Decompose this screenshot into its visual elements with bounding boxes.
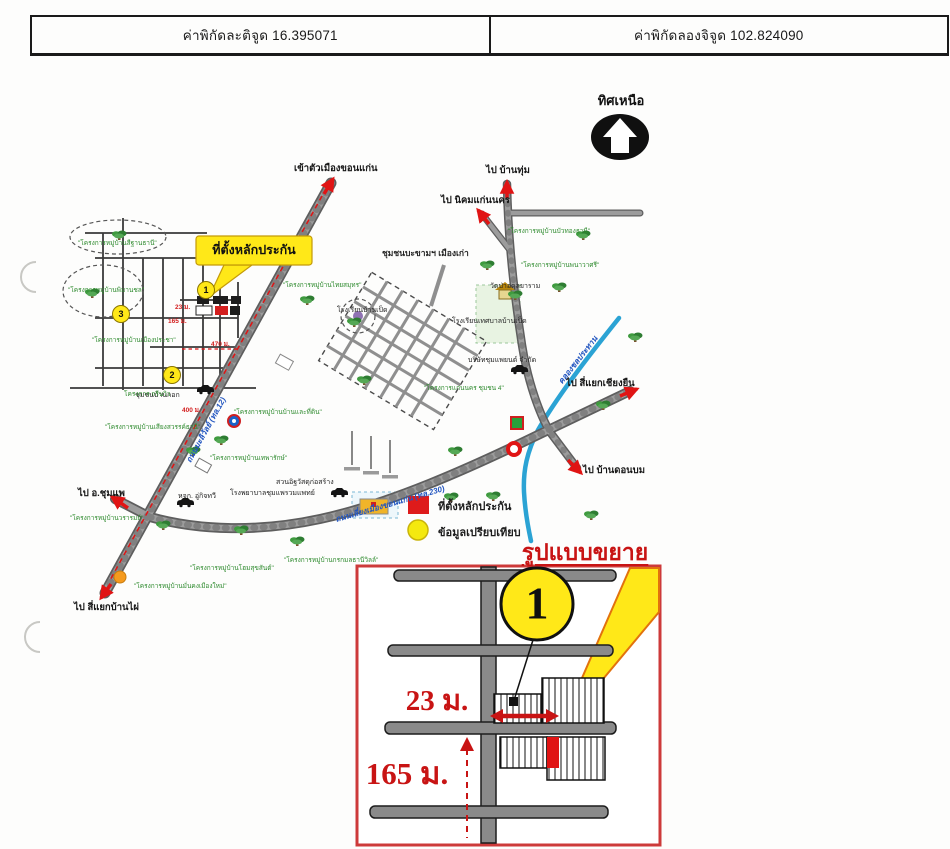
soi-stubs [352,431,390,473]
housing-project-label: "โครงการหมู่บ้านบัวทองธานี" [508,226,590,236]
place-name-label: บริษัทชุมแพยนต์ จำกัด [468,355,536,366]
inset-collateral-unit [547,737,559,768]
place-name-label: วัดป่าอดุลยาราม [490,281,540,292]
gas-station-icon-center [232,419,236,423]
comparison-point-icon [114,571,126,583]
enlargement-inset [357,566,660,845]
place-name-label: โรงพยาบาลชุมแพรวมแพทย์ [230,488,315,499]
housing-project-label: "โครงการหมู่บ้านเสียงสวรรค์ธานี" [105,422,200,432]
housing-project-label: "โครงการหมู่บ้านพิมานชล" [68,285,144,295]
place-name-label: สวนอิฐวัสดุก่อสร้าง [276,477,334,488]
housing-project-label: "โครงการหมู่บ้านไทยสมุทร" [283,280,361,290]
collateral-callout-label: ที่ตั้งหลักประกัน [212,240,295,260]
inset-pointer-square [509,697,518,706]
map-direction-label: ไป สี่แยกเชียงยืน [566,376,635,391]
map-direction-label: ไป อ.ชุมแพ [78,486,125,501]
housing-project-label: "โครงการหมู่บ้านมั่นคงเมืองใหม่" [134,581,227,591]
community-label: ชุมชนบะขามฯ เมืองเก่า [382,246,469,260]
legend-yellow-circle-icon [408,520,428,540]
map-direction-label: ไป นิคมแก่นนคร [441,193,510,208]
numbered-comparison-marker: 3 [112,305,130,323]
store-icon [511,417,523,429]
distance-measurement-label: 165 ม. [168,316,187,326]
legend-collateral-label: ที่ตั้งหลักประกัน [438,497,511,515]
central-estate [319,272,487,429]
map-direction-label: ไป บ้านดอนบม [583,463,645,478]
inset-width-measurement: 23 ม. [406,677,469,723]
distance-measurement-label: 400 ม. [182,405,201,415]
place-name-label: โรงเรียนบ้านเป็ด [337,305,388,316]
map-direction-label: เข้าตัวเมืองขอนแก่น [294,161,378,176]
housing-project-label: "โครงการหมู่บ้านเทพารักษ์" [210,453,287,463]
collateral-site-buildings [196,296,241,315]
map-direction-label: ไป บ้านทุ่ม [486,163,530,178]
ring-logo-icon [508,443,520,455]
housing-project-label: "โครงการหมู่บ้านโฮมสุขสันต์" [190,563,274,573]
place-name-label: หจก. อู่กิจทวี [178,491,216,502]
sign-icon [275,354,293,370]
housing-project-label: "โครงการหมู่บ้านบ้านและที่ดิน" [234,407,322,417]
estate-entry-road [431,265,444,306]
housing-project-label: "โครงการหมู่บ้านกรกมลธานีวิลล์" [284,555,378,565]
distance-measurement-label: 470 ม. [211,339,230,349]
numbered-comparison-marker: 1 [197,281,215,299]
housing-project-label: "โครงการหมู่บ้านวรารมย์" [70,513,143,523]
scanned-collateral-map-document: ค่าพิกัดละติจูด 16.395071 ค่าพิกัดลองจิจ… [0,0,950,849]
housing-project-label: "โครงการหมู่บ้านพนาวาศรี" [521,260,599,270]
north-arrow-icon [591,114,649,160]
map-direction-label: ไป สี่แยกบ้านไผ่ [74,600,139,615]
housing-project-label: "โครงการแก่นนคร ชุมชน 4" [424,383,504,393]
legend-comparison-label: ข้อมูลเปรียบเทียบ [438,523,521,541]
inset-unit-number: 1 [526,577,549,630]
housing-project-label: โครงการ กรีนวิว [124,389,171,399]
hole-punch-marks [21,262,40,652]
north-label: ทิศเหนือ [598,90,645,111]
housing-project-label: "โครงการหมู่บ้านสีฐานธานี" [78,238,157,248]
distance-measurement-label: 23 ม. [175,302,190,312]
inset-title: รูปแบบขยาย [522,535,649,571]
housing-project-label: "โครงการหมู่บ้านเมืองประชา" [92,335,176,345]
numbered-comparison-marker: 2 [163,366,181,384]
inset-distance-measurement: 165 ม. [366,748,448,798]
place-name-label: โรงเรียนเทศบาลบ้านเป็ด [452,316,527,327]
